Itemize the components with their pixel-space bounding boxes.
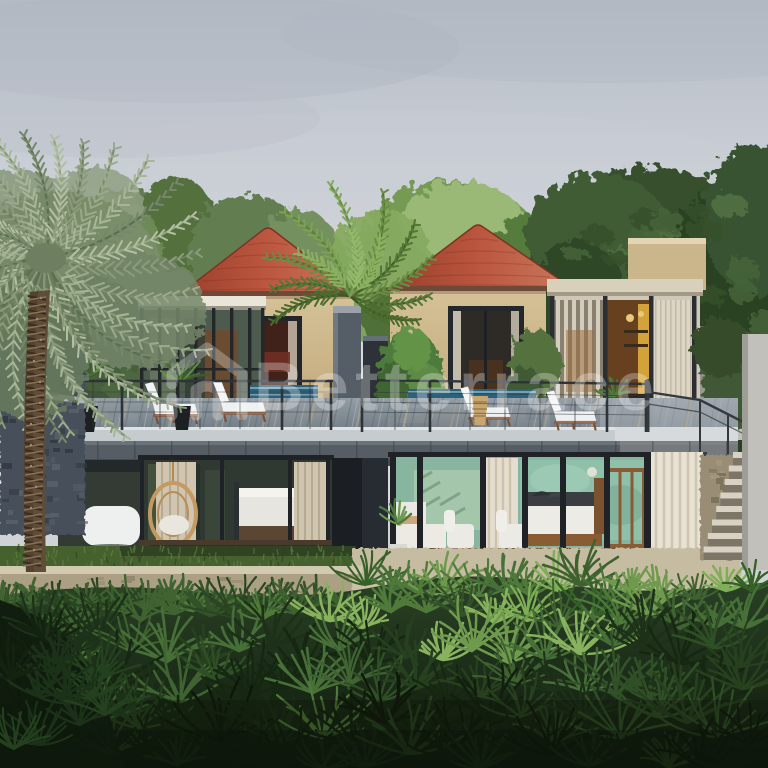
svg-text:Betterrace: Betterrace [254,348,660,425]
